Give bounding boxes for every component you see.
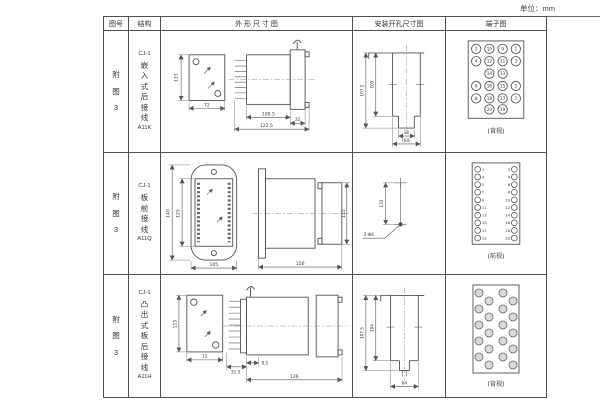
terminal-cell-3: (背视) <box>446 275 546 397</box>
svg-text:17: 17 <box>482 229 487 233</box>
header-mounting-holes: 安装开孔尺寸图 <box>353 17 446 31</box>
dim-offset-3: 9.5 <box>261 361 268 366</box>
header-structure: 结构 <box>129 17 161 31</box>
dimension-table: 图号 结构 外 形 尺 寸 图 安装开孔尺寸图 端子图 附图3 CJ-1 嵌入式… <box>103 16 547 398</box>
dim-depth-3: 126 <box>290 374 299 380</box>
svg-text:16: 16 <box>487 84 493 89</box>
figure-label-3: 附图3 <box>112 316 120 357</box>
figure-cell-2: 附图3 <box>104 153 129 275</box>
mounting-drawing-2: 133 2-Φ6 <box>353 153 445 274</box>
screw-mark-icon <box>204 67 215 89</box>
structure-cell-2: CJ-1 板前接线 A11Q <box>129 153 161 275</box>
dim-flange-depth-1: 35 <box>295 117 301 122</box>
mounting-drawing-cell-3: 107.5 104 64 <box>353 275 446 397</box>
mounting-drawing-cell-1: 107.5 105 16 (64) <box>353 31 446 153</box>
svg-text:16: 16 <box>505 221 510 225</box>
dim-height-inner-3: 104 <box>369 324 374 332</box>
terminal-diagram-1: 2109141211314136161558181772019 (背视) <box>446 31 546 152</box>
unit-label: 单位：mm <box>512 2 600 17</box>
mounting-drawing-3: 107.5 104 64 <box>353 275 445 397</box>
terminal-grid-2: 1234567891011121314151617181920 <box>475 166 517 240</box>
outline-drawing-cell-1: 115 72 100.5 35 122.5 <box>161 31 353 153</box>
svg-text:18: 18 <box>505 229 510 233</box>
svg-text:3: 3 <box>515 59 518 64</box>
view-label-1: (背视) <box>487 127 504 135</box>
view-label-2: (前视) <box>487 252 504 260</box>
structure-desc-1: 嵌入式后接线 <box>141 62 149 122</box>
dim-height-inner-1: 105 <box>369 80 374 88</box>
type-code-3: A11H <box>137 375 151 381</box>
svg-text:2: 2 <box>508 168 511 172</box>
svg-text:4: 4 <box>475 59 478 64</box>
structure-desc-2: 板前接线 <box>141 194 149 233</box>
svg-text:13: 13 <box>500 71 506 76</box>
screw-mark-icon <box>207 189 223 223</box>
svg-text:11: 11 <box>500 59 506 64</box>
dim-flange-height-2: 140 <box>166 209 172 218</box>
svg-text:13: 13 <box>482 214 487 218</box>
terminal-cell-2: 1234567891011121314151617181920 (前视) <box>446 153 546 275</box>
terminal-diagram-3: (背视) <box>446 275 546 397</box>
dim-front-width-3: 72 <box>202 354 208 360</box>
header-terminal-diagram: 端子图 <box>446 17 546 31</box>
svg-text:15: 15 <box>500 84 506 89</box>
svg-text:17: 17 <box>500 96 506 101</box>
svg-text:18: 18 <box>487 96 493 101</box>
type-code-2: A11Q <box>137 237 151 243</box>
dim-side-height-2: 115 <box>341 209 347 218</box>
svg-text:8: 8 <box>508 191 511 195</box>
svg-text:5: 5 <box>482 183 485 187</box>
dim-front-height-1: 115 <box>174 73 180 82</box>
type-code-1: A11K <box>138 126 152 132</box>
structure-desc-3: 凸出式板后接线 <box>141 301 149 372</box>
svg-text:19: 19 <box>500 107 506 112</box>
svg-text:7: 7 <box>482 191 485 195</box>
terminal-grid-3 <box>475 289 517 369</box>
svg-text:12: 12 <box>505 206 510 210</box>
svg-text:11: 11 <box>482 206 487 210</box>
svg-text:1: 1 <box>515 46 518 51</box>
svg-text:8: 8 <box>475 96 478 101</box>
header-figure-no: 图号 <box>104 17 129 31</box>
svg-text:3: 3 <box>482 175 485 179</box>
dim-width-ref-1: (64) <box>402 138 411 143</box>
dim-hole-spec-2: 2-Φ6 <box>364 232 374 237</box>
header-outline-dims: 外 形 尺 寸 图 <box>161 17 353 31</box>
svg-text:4: 4 <box>508 175 511 179</box>
figure-cell-1: 附图3 <box>104 31 129 153</box>
view-label-3: (背视) <box>487 380 504 388</box>
dim-height-outer-3: 107.5 <box>359 327 364 339</box>
model-label-2: CJ-1 <box>138 184 150 190</box>
terminal-cell-1: 2109141211314136161558181772019 (背视) <box>446 31 546 153</box>
terminal-grid-1: 2109141211314136161558181772019 <box>472 44 521 114</box>
mounting-drawing-1: 107.5 105 16 (64) <box>353 31 445 152</box>
svg-text:2: 2 <box>475 46 478 51</box>
dim-flange-width-2: 105 <box>210 262 219 268</box>
model-label-1: CJ-1 <box>138 52 150 58</box>
mounting-drawing-cell-2: 133 2-Φ6 <box>353 153 446 275</box>
figure-label-1: 附图3 <box>112 71 120 112</box>
svg-text:19: 19 <box>482 236 487 240</box>
structure-cell-3: CJ-1 凸出式板后接线 A11H <box>129 275 161 397</box>
outline-drawing-cell-3: 115 72 31.5 9.5 126 <box>161 275 353 397</box>
outline-drawing-3: 115 72 31.5 9.5 126 <box>161 275 352 397</box>
terminal-diagram-2: 1234567891011121314151617181920 (前视) <box>446 153 546 274</box>
dim-depth-2: 156 <box>296 261 305 267</box>
dim-pin-depth-3: 31.5 <box>231 369 241 374</box>
svg-text:5: 5 <box>515 84 518 89</box>
dim-hole-distance-2: 133 <box>379 199 384 207</box>
svg-text:10: 10 <box>487 46 493 51</box>
svg-text:9: 9 <box>482 198 485 202</box>
dim-depth-body-1: 100.5 <box>262 111 275 117</box>
svg-text:14: 14 <box>505 214 510 218</box>
svg-text:14: 14 <box>487 71 493 76</box>
figure-cell-3: 附图3 <box>104 275 129 397</box>
mounting-screw-icon <box>293 40 301 50</box>
structure-cell-1: CJ-1 嵌入式后接线 A11K <box>129 31 161 153</box>
outline-drawing-cell-2: 140 125 105 156 115 <box>161 153 353 275</box>
dim-notch-width-1: 16 <box>404 130 410 135</box>
dim-body-height-2: 125 <box>176 209 182 218</box>
outline-drawing-2: 140 125 105 156 115 <box>161 153 352 274</box>
svg-text:7: 7 <box>515 96 518 101</box>
svg-text:6: 6 <box>475 84 478 89</box>
screw-mark-icon <box>201 310 211 337</box>
svg-text:12: 12 <box>487 59 493 64</box>
outline-drawing-1: 115 72 100.5 35 122.5 <box>161 31 352 152</box>
figure-label-2: 附图3 <box>112 193 120 234</box>
mounting-screw-icon <box>247 286 255 297</box>
dim-front-width-1: 72 <box>204 102 210 108</box>
dim-depth-total-1: 122.5 <box>260 123 273 129</box>
dim-height-outer-1: 107.5 <box>359 84 364 96</box>
svg-text:1: 1 <box>482 168 485 172</box>
svg-text:9: 9 <box>501 46 504 51</box>
model-label-3: CJ-1 <box>138 291 150 297</box>
svg-text:15: 15 <box>482 221 487 225</box>
dim-front-height-3: 115 <box>172 320 178 329</box>
dim-width-3: 64 <box>402 380 408 385</box>
svg-text:20: 20 <box>487 107 493 112</box>
svg-text:20: 20 <box>505 236 510 240</box>
svg-text:10: 10 <box>505 198 510 202</box>
svg-text:6: 6 <box>508 183 511 187</box>
